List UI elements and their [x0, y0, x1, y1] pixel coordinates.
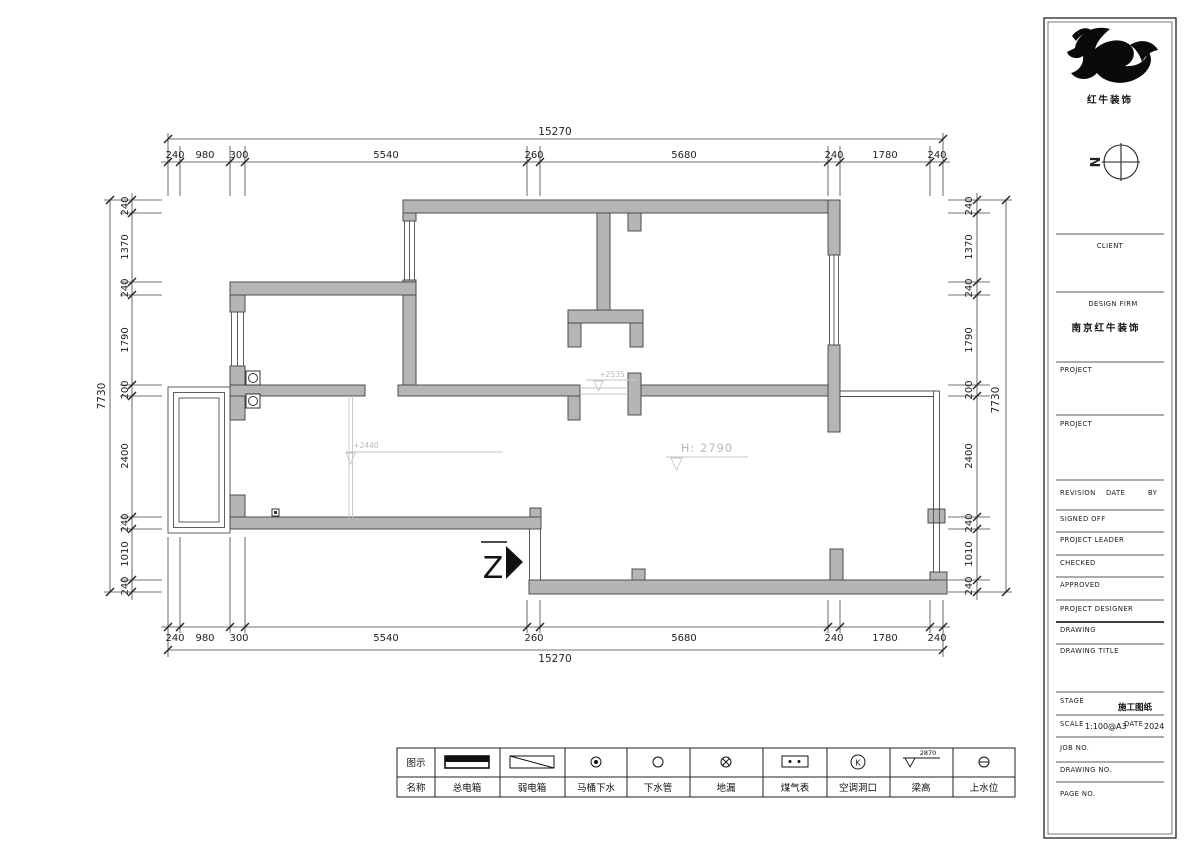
legend-item-name: 地漏	[716, 782, 735, 794]
dim-label: 2400	[120, 443, 131, 468]
client-label: CLIENT	[1097, 242, 1124, 250]
date-value: 2024	[1144, 722, 1164, 731]
walls	[230, 200, 947, 594]
drawing-sheet: 15270 240 980 300 5540 260 5680 240 1780…	[0, 0, 1200, 852]
title-block: 红牛装饰 N CLIENT D	[1044, 18, 1176, 838]
legend-item-name: 弱电箱	[518, 782, 547, 794]
floor-plan-canvas: 15270 240 980 300 5540 260 5680 240 1780…	[0, 0, 1200, 852]
design-firm-label: DESIGN FIRM	[1088, 300, 1137, 308]
legend-header-name: 名称	[406, 782, 426, 794]
entry-arrow: Z	[481, 542, 523, 586]
job-no-label: JOB NO.	[1059, 744, 1089, 752]
dim-label: 1370	[964, 234, 975, 259]
legend-item-name: 马桶下水	[577, 782, 616, 794]
wall-right	[828, 200, 840, 255]
entry-letter: Z	[483, 551, 504, 586]
right-balcony	[840, 391, 940, 572]
dim-bottom-overall: 15270	[538, 653, 571, 665]
level-annotation: +2535	[599, 370, 625, 379]
dim-label: 240	[165, 150, 184, 161]
dim-label: 1790	[120, 327, 131, 352]
legend-symbol-weak-panel-icon	[510, 756, 554, 768]
dim-label: 1780	[872, 150, 897, 161]
top-dimension-labels: 15270 240 980 300 5540 260 5680 240 1780…	[165, 126, 946, 161]
scale-value: 1:100@A3	[1085, 722, 1127, 731]
by-label: BY	[1148, 489, 1158, 497]
legend-item-name: 总电箱	[453, 782, 482, 794]
left-dimension-labels: 7730 240 1370 240 1790 200 2400 240 1010…	[96, 196, 131, 595]
dim-label: 5540	[373, 150, 398, 161]
dim-label: 260	[524, 633, 543, 644]
legend-item-name: 上水位	[970, 782, 999, 794]
dim-label: 300	[229, 150, 248, 161]
project-leader-label: PROJECT LEADER	[1060, 536, 1124, 544]
left-balcony	[168, 387, 230, 533]
wall-lower-left	[230, 517, 541, 529]
dim-label: 200	[120, 380, 131, 399]
dim-label: 300	[229, 633, 248, 644]
dim-label: 240	[824, 150, 843, 161]
dim-top-overall: 15270	[538, 126, 571, 138]
drawing-label: DRAWING	[1060, 626, 1096, 634]
dim-label: 240	[165, 633, 184, 644]
top-dimensions	[161, 133, 950, 196]
drawing-no-label: DRAWING NO.	[1060, 766, 1112, 774]
right-dimensions	[948, 193, 1012, 600]
svg-text:K: K	[855, 759, 861, 768]
legend-beam-height-value: 2870	[920, 749, 937, 757]
left-dimensions	[104, 193, 162, 600]
dim-label: 240	[824, 633, 843, 644]
legend-item-name: 梁高	[911, 782, 930, 794]
dim-label: 240	[964, 196, 975, 215]
approved-label: APPROVED	[1060, 581, 1100, 589]
brand-logo-icon	[1067, 28, 1158, 83]
dim-label: 5540	[373, 633, 398, 644]
date2-label: DATE	[1124, 720, 1143, 728]
dim-label: 5680	[671, 150, 696, 161]
legend-symbol-main-panel-icon	[445, 756, 489, 768]
dim-label: 240	[120, 576, 131, 595]
dim-label: 1010	[964, 541, 975, 566]
scale-label: SCALE	[1060, 720, 1084, 728]
dim-label: 1790	[964, 327, 975, 352]
dim-label: 240	[120, 196, 131, 215]
legend-symbol-ac-opening-icon: K	[851, 755, 865, 769]
dim-label: 240	[120, 278, 131, 297]
page-no-label: PAGE NO.	[1060, 790, 1095, 798]
legend-symbol-beam-height-icon: 2870	[903, 749, 940, 767]
design-firm-value: 南京红牛装饰	[1071, 322, 1140, 334]
dim-label: 240	[964, 513, 975, 532]
stage-value: 施工图纸	[1118, 702, 1153, 713]
legend-symbol-water-supply-icon	[979, 757, 989, 767]
dim-label: 2400	[964, 443, 975, 468]
entry-triangle-icon	[506, 546, 523, 579]
revision-label: REVISION	[1060, 489, 1096, 497]
dim-label: 1780	[872, 633, 897, 644]
legend-table: 图示 名称 K	[397, 748, 1015, 797]
dim-label: 240	[927, 633, 946, 644]
legend-item-name: 下水管	[644, 782, 673, 794]
signed-off-label: SIGNED OFF	[1060, 515, 1106, 523]
drawing-title-label: DRAWING TITLE	[1060, 647, 1119, 655]
wall-stub	[628, 213, 641, 231]
dim-label: 260	[524, 150, 543, 161]
level-annotation: +2440	[353, 441, 379, 450]
north-compass-icon	[1102, 143, 1140, 181]
legend-symbol-floor-drain-icon	[721, 757, 731, 767]
legend-symbol-toilet-drain-icon	[591, 757, 601, 767]
brand-name: 红牛装饰	[1087, 94, 1133, 106]
legend-item-name: 煤气表	[781, 782, 810, 794]
dim-left-overall: 7730	[96, 383, 108, 410]
dim-label: 1370	[120, 234, 131, 259]
ceiling-height-annotation: H: 2790	[681, 441, 733, 455]
wall-interior	[597, 213, 610, 310]
dim-label: 240	[964, 278, 975, 297]
wall-bottom	[529, 580, 947, 594]
legend-symbol-gas-meter-icon	[782, 756, 808, 767]
legend-item-name: 空调洞口	[839, 782, 877, 794]
project-label: PROJECT	[1060, 366, 1093, 374]
date-label: DATE	[1106, 489, 1125, 497]
dim-right-overall: 7730	[990, 387, 1002, 414]
dim-label: 980	[195, 633, 214, 644]
dim-label: 980	[195, 150, 214, 161]
wall-bedroom-top	[230, 282, 416, 295]
wall-top	[403, 200, 840, 213]
stage-label: STAGE	[1060, 697, 1084, 705]
dim-label: 5680	[671, 633, 696, 644]
compass-north-letter: N	[1089, 157, 1104, 168]
project-label: PROJECT	[1060, 420, 1093, 428]
dim-label: 240	[927, 150, 946, 161]
project-designer-label: PROJECT DESIGNER	[1060, 605, 1133, 613]
bottom-dimension-labels: 15270 240 980 300 5540 260 5680 240 1780…	[165, 633, 946, 665]
legend-header-symbol: 图示	[406, 758, 425, 769]
dim-label: 200	[964, 380, 975, 399]
checked-label: CHECKED	[1060, 559, 1096, 567]
dim-label: 240	[120, 513, 131, 532]
dim-label: 1010	[120, 541, 131, 566]
legend-symbol-downpipe-icon	[653, 757, 663, 767]
dim-label: 240	[964, 576, 975, 595]
